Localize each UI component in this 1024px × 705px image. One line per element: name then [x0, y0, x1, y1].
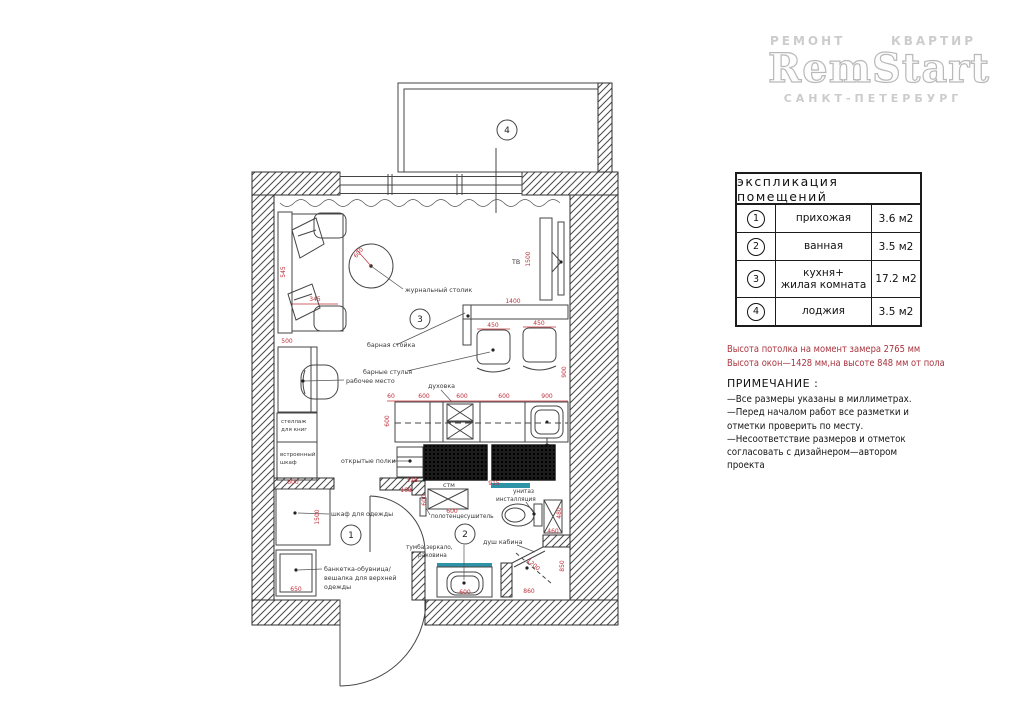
wardrobe — [276, 489, 330, 545]
logo: РЕМОНТ КВАРТИР RemStart САНКТ-ПЕТЕРБУРГ — [768, 34, 978, 105]
label-book-shelf-2: для книг — [281, 427, 307, 433]
legend-row-2-area: 3.5 м2 — [872, 233, 920, 260]
note-item: —Перед началом работ все разметки и отме… — [727, 406, 916, 433]
dimension: 600 — [456, 393, 468, 400]
legend-row-4-area: 3.5 м2 — [872, 298, 920, 325]
dimension: 600 — [421, 494, 428, 506]
legend-row-3-area: 17.2 м2 — [872, 261, 920, 297]
bar-stool — [523, 328, 556, 370]
room-number-badge: 3 — [747, 270, 765, 288]
dimension: 345 — [309, 296, 321, 303]
dimension: 600 — [384, 415, 391, 427]
legend-row-1-number: 1 — [737, 205, 776, 232]
label-builtin-closet: встроенный — [280, 451, 316, 458]
logo-brand: RemStart — [768, 48, 978, 90]
label-bar-counter: барная стойка — [367, 341, 415, 349]
logo-city: САНКТ-ПЕТЕРБУРГ — [768, 92, 978, 105]
label-builtin-closet-2: шкаф — [280, 460, 297, 466]
notes-title: ПРИМЕЧАНИЕ : — [727, 377, 932, 390]
ceiling-height-note: Высота потолка на момент замера 2765 мм — [727, 343, 956, 357]
dimension: 1200 — [525, 557, 541, 573]
svg-text:1: 1 — [348, 531, 354, 541]
dimension: 1500 — [525, 251, 532, 266]
dimension: 545 — [280, 266, 287, 278]
legend-row-2-name: ванная — [804, 240, 843, 252]
label-coffee-table: журнальный столик — [405, 286, 472, 294]
label-towel-dryer: полотенцесушитель — [431, 514, 494, 520]
legend-row-2: 2 ванная 3.5 м2 — [737, 233, 920, 261]
bar-counter — [463, 305, 568, 345]
kitchen-counter — [395, 402, 568, 448]
washing-machine — [428, 489, 468, 509]
dimension: 600 — [459, 589, 471, 596]
label-open-shelves: открытые полки — [341, 458, 396, 465]
label-bench-3: одежды — [324, 584, 351, 591]
label-bar-stools: барные стулья — [363, 368, 412, 376]
dimension: 850 — [559, 560, 566, 572]
label-tv: ТВ — [511, 259, 520, 266]
note-item: —Несоответствие размеров и отметок согла… — [727, 433, 916, 473]
label-vanity-2: раковина — [418, 553, 447, 559]
dimension: 600 — [418, 393, 430, 400]
room-number-badge: 2 — [747, 238, 765, 256]
legend-row-1-area: 3.6 м2 — [872, 205, 920, 232]
label-toilet: унитаз — [513, 489, 534, 495]
legend-row-1: 1 прихожая 3.6 м2 — [737, 205, 920, 233]
label-oven: духовка — [428, 383, 455, 390]
room-circle-1: 1 — [341, 525, 361, 545]
bar-stool — [477, 330, 510, 372]
entry-door — [340, 600, 426, 686]
legend-table: экспликация помещений 1 прихожая 3.6 м2 … — [735, 172, 922, 327]
room-circle-3: 3 — [410, 309, 430, 329]
dimension: 600 — [287, 479, 299, 486]
window — [340, 174, 522, 195]
dimension: 650 — [290, 586, 302, 593]
notes-block: ПРИМЕЧАНИЕ : —Все размеры указаны в милл… — [727, 377, 932, 473]
svg-text:3: 3 — [417, 315, 423, 325]
room-number-badge: 1 — [747, 210, 765, 228]
dimension: 900 — [541, 393, 553, 400]
dimension: 60 — [387, 393, 395, 400]
label-wardrobe: шкаф для одежды — [331, 511, 393, 518]
dimension: 600 — [446, 508, 458, 515]
label-book-shelf: стеллаж — [281, 419, 306, 425]
work-desk — [278, 347, 317, 412]
label-workplace: рабочее место — [346, 377, 395, 385]
tile-grid — [424, 445, 555, 480]
legend-row-1-name: прихожая — [796, 212, 851, 224]
room-number-badge: 4 — [747, 303, 765, 321]
legend-title: экспликация помещений — [737, 174, 920, 205]
toilet — [502, 504, 542, 526]
label-washing-machine: стм — [443, 482, 455, 489]
label-vanity: тумба,зеркало, — [406, 545, 453, 551]
dimension: 168 — [400, 487, 412, 494]
dimension: 860 — [523, 588, 535, 595]
dimension: 450 — [533, 320, 545, 327]
legend-row-4: 4 лоджия 3.5 м2 — [737, 298, 920, 325]
dimension: 318 — [406, 477, 418, 484]
curtain-line — [280, 200, 560, 207]
room-circle-2: 2 — [455, 524, 475, 544]
legend-row-3: 3 кухня+ жилая комната 17.2 м2 — [737, 261, 920, 298]
dimension: 500 — [281, 338, 293, 345]
svg-text:2: 2 — [462, 530, 468, 540]
cooktop — [447, 404, 473, 439]
label-toilet-2: инсталляция — [496, 497, 536, 503]
dimension: 460 — [547, 528, 559, 535]
page: { "logo": { "tagline_left": "РЕМОНТ", "t… — [0, 0, 1024, 682]
dimension: 900 — [561, 366, 568, 378]
legend-row-3-name2: жилая комната — [781, 279, 867, 291]
floor-plan: 1 2 3 4 журнальный столик ТВ барная стой… — [245, 55, 630, 705]
sofa — [278, 212, 346, 333]
svg-text:4: 4 — [504, 126, 510, 136]
dimension: 600 — [498, 393, 510, 400]
desk-chair — [301, 365, 338, 399]
dimension: 915 — [488, 480, 500, 487]
room-circle-4: 4 — [497, 120, 517, 140]
hallway-door — [370, 496, 425, 552]
legend-row-3-name: кухня+ — [803, 267, 844, 279]
label-bench: банкетка-обувница/ — [324, 565, 392, 573]
note-item: —Все размеры указаны в миллиметрах. — [727, 393, 916, 406]
label-bench-2: вешалка для верхней — [324, 574, 396, 582]
dimension: 450 — [487, 322, 499, 329]
window-height-note: Высота окон—1428 мм,на высоте 848 мм от … — [727, 357, 956, 371]
tv-unit — [540, 218, 564, 300]
dimension: 1400 — [505, 298, 520, 305]
dimension: 1500 — [314, 509, 321, 524]
legend-row-4-name: лоджия — [802, 305, 845, 317]
measurement-notes: Высота потолка на момент замера 2765 мм … — [727, 343, 956, 371]
dimension: 480 — [556, 507, 563, 519]
label-shower: душ кабина — [483, 538, 523, 546]
